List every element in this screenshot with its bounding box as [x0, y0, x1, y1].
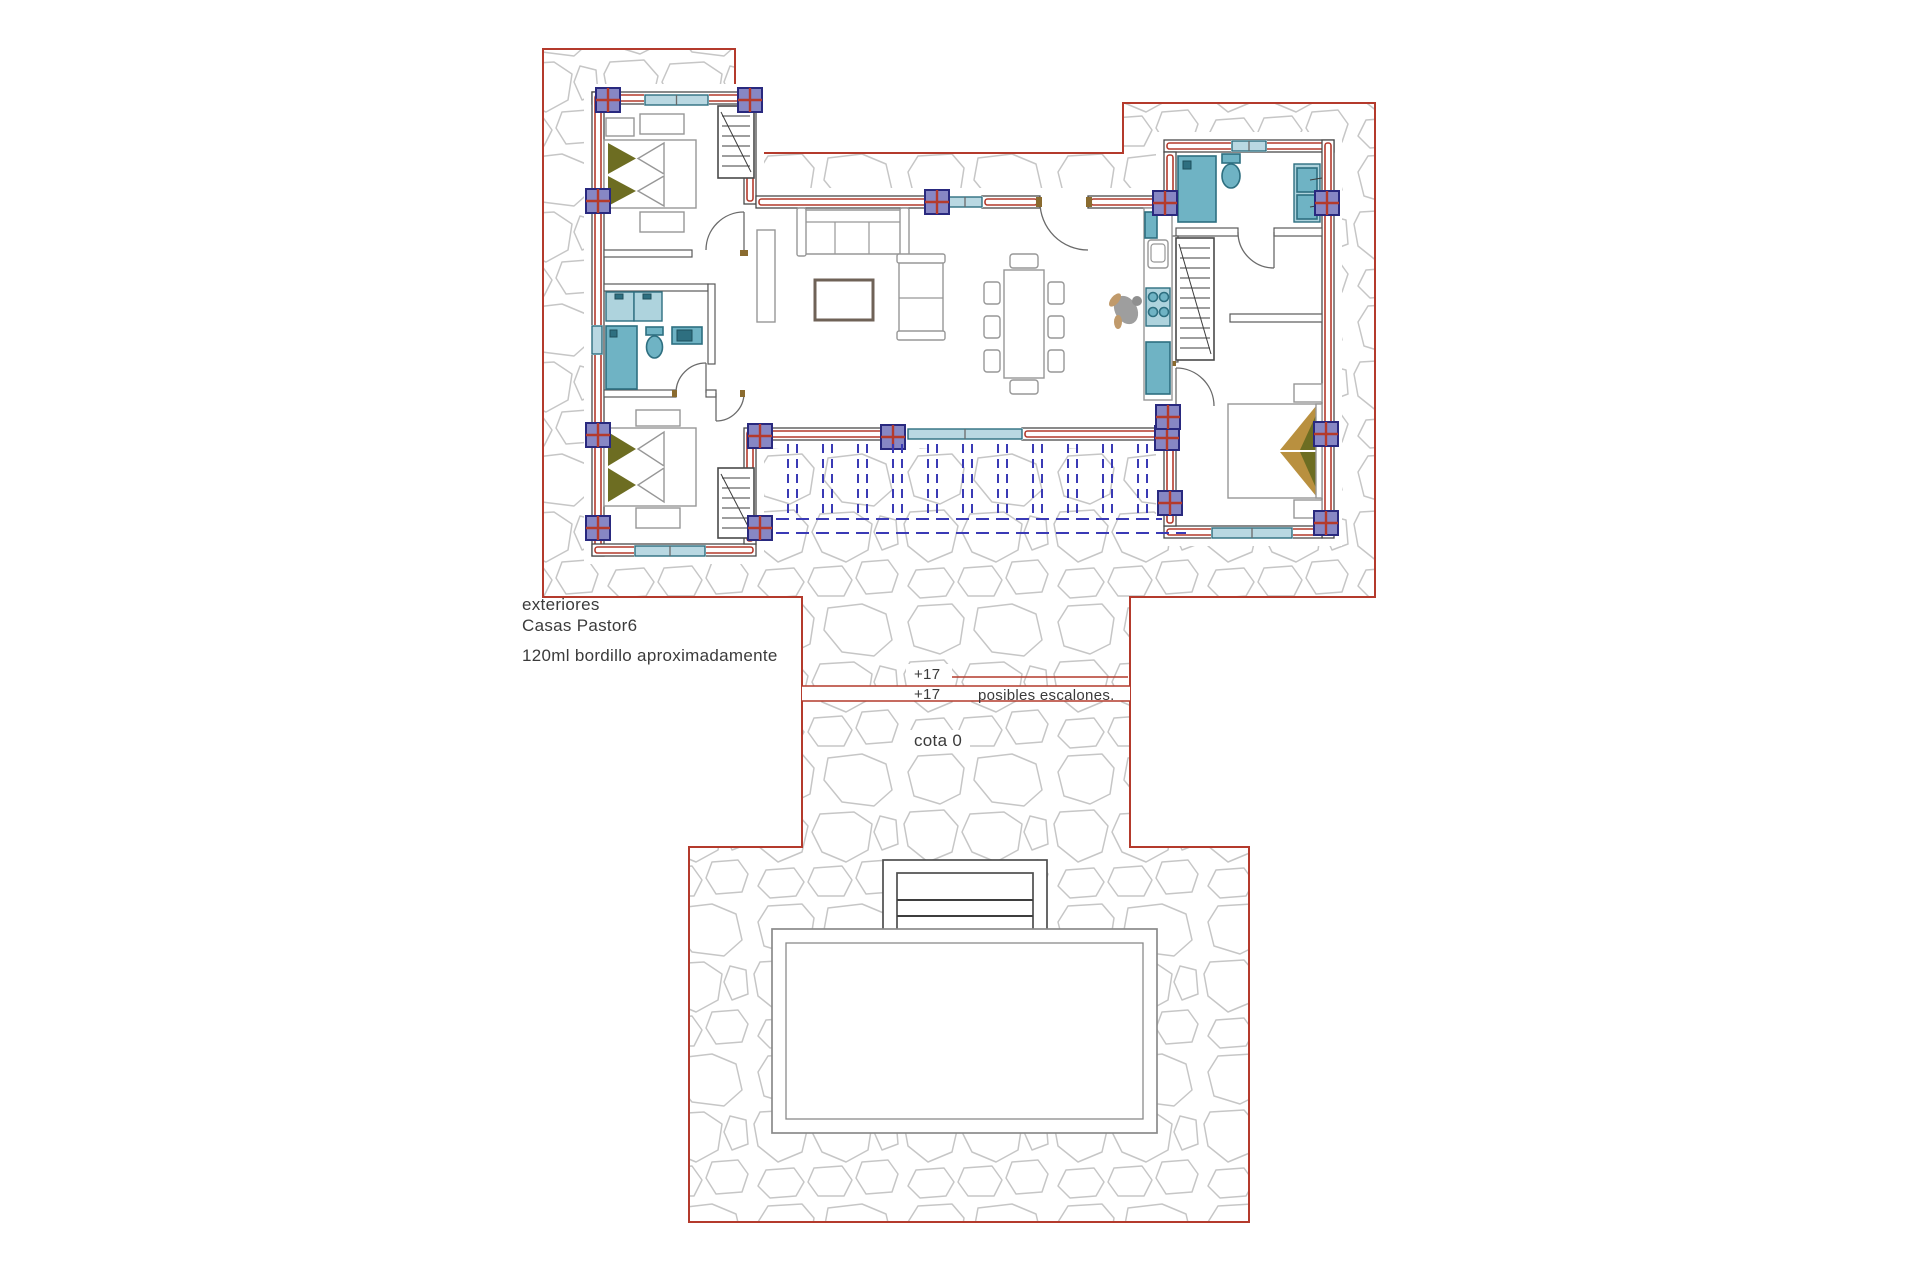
wall — [1164, 152, 1176, 196]
dining-chair — [984, 282, 1000, 304]
structural-column — [586, 516, 610, 540]
structural-column — [738, 88, 762, 112]
wall — [982, 196, 1040, 208]
structural-column — [1156, 405, 1180, 429]
structural-column — [1315, 191, 1339, 215]
nightstand — [640, 114, 684, 134]
structural-column — [586, 423, 610, 447]
label-cota: cota 0 — [914, 731, 962, 750]
structural-column — [748, 516, 772, 540]
master-bedroom — [1228, 384, 1322, 518]
nightstand — [640, 212, 684, 232]
wall — [1022, 428, 1164, 440]
kitchen-cabinet — [1146, 342, 1170, 394]
nightstand — [636, 508, 680, 528]
dining-chair — [1048, 316, 1064, 338]
wall — [756, 196, 948, 208]
dining-chair — [984, 350, 1000, 372]
structural-column — [1153, 191, 1177, 215]
dining-table — [1004, 270, 1044, 378]
floor-plan-page: exteriores Casas Pastor6 120ml bordillo … — [0, 0, 1920, 1280]
dining-chair — [1010, 254, 1038, 268]
coffee-table — [815, 280, 873, 320]
pool-outer — [772, 929, 1157, 1133]
structural-column — [596, 88, 620, 112]
window — [592, 326, 602, 354]
floor-plan-drawing: exteriores Casas Pastor6 120ml bordillo … — [0, 0, 1920, 1280]
stove — [1146, 288, 1170, 326]
nightstand — [636, 410, 680, 426]
label-project: Casas Pastor6 — [522, 616, 637, 635]
structural-column — [1158, 491, 1182, 515]
wardrobe — [1176, 238, 1214, 360]
dining-chair — [984, 316, 1000, 338]
structural-column — [1314, 422, 1338, 446]
sofa — [801, 210, 905, 254]
toilet — [1222, 154, 1240, 188]
structural-column — [1314, 511, 1338, 535]
pillow — [606, 118, 634, 136]
structural-column — [925, 190, 949, 214]
structural-column — [748, 424, 772, 448]
wall — [756, 428, 888, 440]
dining-chair — [1048, 282, 1064, 304]
structural-column — [586, 189, 610, 213]
label-bordillo: 120ml bordillo aproximadamente — [522, 646, 778, 665]
sink — [672, 327, 702, 344]
label-exteriores: exteriores — [522, 595, 600, 614]
wall — [592, 92, 604, 556]
label-level-upper: +17 — [914, 666, 940, 683]
label-escalones: posibles escalones. — [978, 687, 1115, 704]
nightstand — [1294, 384, 1322, 402]
dining-chair — [1010, 380, 1038, 394]
label-level-lower: +17 — [914, 686, 940, 703]
dining-chair — [1048, 350, 1064, 372]
tv-cabinet — [757, 230, 775, 322]
wardrobe — [718, 106, 754, 178]
toilet — [646, 327, 663, 358]
